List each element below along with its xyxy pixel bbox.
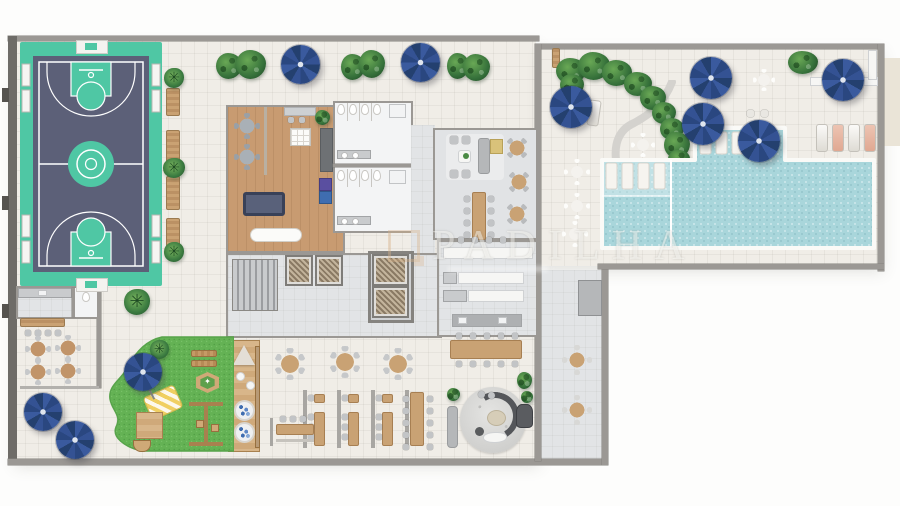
toilet <box>361 104 369 115</box>
cafe-table <box>55 358 81 384</box>
kids-table <box>246 381 255 390</box>
basketball-hoop-backboard <box>85 43 97 50</box>
arcade-machine <box>319 191 332 204</box>
restaurant-round-table <box>382 348 414 380</box>
play-structure-deck <box>136 412 163 439</box>
pool-umbrella <box>682 103 724 145</box>
billiards-table <box>243 192 285 216</box>
watermark-logo <box>388 230 420 262</box>
chair <box>403 408 409 414</box>
tv-media-unit <box>320 128 333 172</box>
stall-partition <box>359 103 360 121</box>
sandbox-center: ✦ <box>200 376 214 389</box>
pouf <box>487 410 506 426</box>
picnic-bench <box>191 350 217 357</box>
toilet <box>349 170 357 181</box>
armchair <box>462 136 470 144</box>
gourmet-table <box>562 395 592 425</box>
chair <box>376 424 382 430</box>
basketball-court <box>20 42 162 286</box>
pool-umbrella <box>822 59 864 101</box>
pantry-sink <box>38 290 47 296</box>
appliance <box>498 317 507 324</box>
swing-frame-post <box>204 406 208 442</box>
toilet <box>337 170 345 181</box>
restaurant-round-table <box>329 346 361 378</box>
bar-stool <box>456 361 462 367</box>
promenade-umbrella <box>401 43 440 82</box>
wall-pilaster <box>2 304 9 318</box>
sofa <box>478 138 490 174</box>
stall-partition <box>347 103 348 121</box>
restaurant-round-table <box>274 348 306 380</box>
sink <box>352 218 359 225</box>
armchair <box>450 170 458 178</box>
cafe-bottom-edge <box>20 386 99 389</box>
sun-lounger <box>848 124 860 152</box>
top-wall-pool-deck <box>538 44 884 49</box>
gourmet-table <box>562 345 592 375</box>
sun-lounger-occupied <box>864 124 876 152</box>
kitchen-counter <box>443 272 457 284</box>
booth-bench <box>276 439 314 442</box>
deck-bench-long <box>868 50 877 80</box>
watermark-brand-text: PADILHA <box>432 222 696 270</box>
barbecue-grill <box>516 404 533 428</box>
amenities-floor-plan: ✦ <box>0 0 900 506</box>
deck-table <box>753 69 775 91</box>
walkway-bench <box>166 176 180 210</box>
armchair <box>462 170 470 178</box>
cafe-umbrella <box>56 421 94 459</box>
restrooms-block <box>333 101 413 233</box>
chair <box>376 395 382 401</box>
bar-stool <box>470 333 476 339</box>
promenade-umbrella <box>281 45 320 84</box>
kids-table <box>236 372 245 381</box>
playground-umbrella <box>124 353 162 391</box>
elevator-cab <box>287 257 311 284</box>
booth-partition <box>270 418 273 446</box>
chair <box>376 414 382 420</box>
bar-stool <box>512 361 518 367</box>
right-lower-wall <box>602 266 608 465</box>
chair <box>427 396 433 402</box>
booth-table <box>314 412 325 446</box>
bar-stool <box>498 361 504 367</box>
toy-shelf <box>255 346 260 448</box>
arcade-machine <box>319 178 332 191</box>
ball-pit <box>234 400 255 421</box>
chair <box>342 414 348 420</box>
bar-stool <box>470 361 476 367</box>
cafe-table <box>25 359 51 385</box>
chair <box>427 408 433 414</box>
booth-table <box>382 394 393 403</box>
gourmet-cabinet <box>578 280 602 316</box>
bar-stool <box>498 333 504 339</box>
chair <box>342 434 348 440</box>
toilet <box>337 104 345 115</box>
chair <box>342 395 348 401</box>
sun-lounger <box>816 124 828 152</box>
appliance <box>458 317 467 324</box>
side-chair <box>478 391 485 398</box>
bar-stool <box>45 330 51 336</box>
elevator-cab <box>374 288 407 316</box>
sink <box>341 152 348 159</box>
toilet <box>373 104 381 115</box>
toilet <box>349 104 357 115</box>
poolside-table <box>564 193 590 219</box>
elevator-cab <box>317 257 341 284</box>
chair <box>376 434 382 440</box>
kitchen-counter <box>458 272 524 284</box>
chair <box>464 196 470 202</box>
booth-table <box>276 424 314 435</box>
shower-stall <box>389 170 406 184</box>
stall-partition <box>371 103 372 121</box>
bar-stool <box>55 330 61 336</box>
booth-table <box>382 412 393 446</box>
wall-pilaster <box>2 88 9 102</box>
chair <box>427 432 433 438</box>
wall-pilaster <box>2 196 9 210</box>
shower-stall <box>389 104 406 118</box>
booth-table <box>348 412 359 446</box>
bar-stool <box>512 333 518 339</box>
staircase <box>232 259 278 311</box>
chair <box>300 416 306 422</box>
chair <box>280 416 286 422</box>
toilet <box>373 170 381 181</box>
sink <box>341 218 348 225</box>
sink <box>352 152 359 159</box>
bar-high-table <box>450 340 522 359</box>
stool <box>299 117 305 123</box>
games-round-table <box>234 113 260 139</box>
table-plant <box>463 153 469 159</box>
picnic-bench <box>191 360 217 367</box>
neighbor-slab <box>884 58 900 146</box>
chair <box>308 414 314 420</box>
chair <box>464 208 470 214</box>
communal-long-table <box>410 392 424 446</box>
stall-partition <box>347 169 348 187</box>
sun-chair <box>747 110 754 117</box>
toilet <box>82 292 90 302</box>
chair <box>290 416 296 422</box>
chair <box>427 420 433 426</box>
sun-chair <box>761 110 768 117</box>
bar-stool <box>25 330 31 336</box>
side-chair <box>488 392 495 399</box>
stall-partition <box>371 169 372 187</box>
stool <box>288 117 294 123</box>
armchair <box>450 136 458 144</box>
pool-umbrella <box>690 57 732 99</box>
pool-umbrella <box>550 86 592 128</box>
poolside-table <box>564 159 590 185</box>
chair <box>403 444 409 450</box>
booth-table <box>348 394 359 403</box>
walkway-bench <box>166 88 180 116</box>
chair <box>403 396 409 402</box>
cafe-umbrella <box>24 393 62 431</box>
bookshelf <box>290 128 311 146</box>
coat-rack <box>284 107 316 116</box>
chair <box>427 444 433 450</box>
kitchen-counter <box>443 290 467 302</box>
watermark: PADILHA <box>388 222 696 270</box>
swing-seat <box>196 420 204 428</box>
swing-seat <box>211 424 219 432</box>
cafe-bar-counter <box>20 318 65 327</box>
chair <box>308 395 314 401</box>
ping-pong-table <box>250 228 302 242</box>
chair <box>488 208 494 214</box>
sun-lounger-occupied <box>832 124 844 152</box>
bar-stool <box>484 361 490 367</box>
chair <box>342 424 348 430</box>
booth-partition <box>337 390 341 448</box>
stall-partition <box>359 169 360 187</box>
basketball-hoop-backboard <box>85 281 97 288</box>
organic-coffee-table <box>483 432 507 443</box>
ottoman <box>475 427 484 436</box>
bar-stool <box>456 333 462 339</box>
restroom-divider-wall <box>333 164 413 167</box>
kitchen-counter <box>468 290 524 302</box>
chair <box>403 432 409 438</box>
bench <box>447 406 458 448</box>
watermark-subtext-blur <box>448 266 548 272</box>
pool-umbrella <box>738 120 780 162</box>
booth-table <box>314 394 325 403</box>
left-boundary-wall <box>8 36 17 461</box>
bar-stool <box>484 333 490 339</box>
chair <box>488 196 494 202</box>
toilet <box>361 170 369 181</box>
swing-frame-bar <box>189 442 223 446</box>
chair <box>403 420 409 426</box>
ball-pit <box>234 422 255 443</box>
play-teepee <box>233 345 255 365</box>
games-divider <box>264 107 267 175</box>
booth-partition <box>371 390 375 448</box>
games-round-table <box>234 144 260 170</box>
sideboard <box>490 139 503 154</box>
bottom-boundary-wall <box>8 459 608 465</box>
